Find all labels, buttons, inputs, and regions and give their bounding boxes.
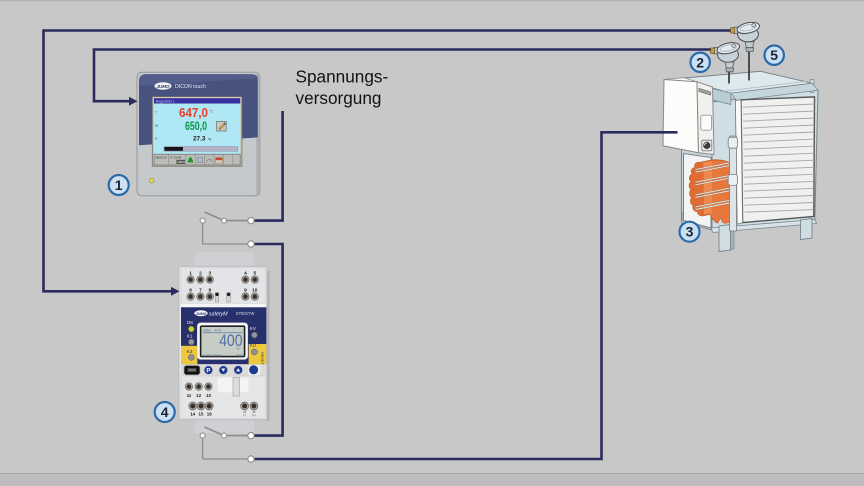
svg-text:(-): (-) (243, 413, 246, 417)
svg-text:RESET: RESET (260, 352, 264, 365)
svg-text:2: 2 (696, 54, 704, 70)
svg-text:P: P (206, 368, 210, 374)
svg-text:13: 13 (206, 393, 211, 398)
svg-text:8: 8 (208, 287, 211, 293)
svg-text:100M: 100M (177, 160, 185, 164)
svg-text:versorgung: versorgung (296, 88, 382, 108)
svg-text:14: 14 (190, 412, 195, 417)
svg-text:07:23:48: 07:23:48 (170, 155, 182, 159)
svg-text:650,0: 650,0 (185, 121, 207, 133)
svg-text:Spannungs-: Spannungs- (296, 67, 389, 87)
svg-text:JUMO: JUMO (156, 84, 170, 89)
svg-text:16: 16 (207, 412, 212, 417)
svg-text:11: 11 (187, 393, 192, 398)
svg-text:7: 7 (199, 287, 202, 293)
svg-text:DICON touch: DICON touch (175, 84, 206, 90)
svg-text:Max: Max (203, 329, 210, 333)
svg-text:KD: KD (250, 342, 257, 347)
svg-text:W: W (155, 124, 159, 128)
svg-text:9: 9 (244, 287, 247, 293)
svg-text:10: 10 (252, 287, 258, 293)
svg-text:KV: KV (250, 326, 257, 331)
svg-text:27.3: 27.3 (193, 136, 206, 143)
svg-text:4: 4 (161, 404, 169, 420)
svg-text:K1: K1 (187, 334, 193, 339)
svg-text:15: 15 (199, 412, 204, 417)
svg-text:1: 1 (115, 177, 123, 193)
svg-text:safetyM: safetyM (209, 311, 228, 317)
svg-text:°C: °C (236, 347, 240, 351)
svg-text:STB/STW: STB/STW (236, 311, 255, 316)
svg-text:K2: K2 (187, 349, 193, 354)
svg-text:12: 12 (196, 393, 201, 398)
svg-text:°C: °C (209, 109, 214, 114)
svg-text:Reglerbild 1: Reglerbild 1 (156, 99, 175, 103)
svg-text:(+): (+) (252, 413, 255, 417)
svg-text:647,0: 647,0 (179, 105, 208, 120)
svg-text:450: 450 (236, 353, 242, 357)
svg-text:JUMO: JUMO (196, 312, 207, 316)
svg-text:5: 5 (770, 47, 778, 63)
svg-text:OK: OK (187, 320, 195, 325)
svg-text:05/02/14: 05/02/14 (155, 155, 167, 159)
svg-text:Limit Value: Limit Value (203, 353, 222, 357)
svg-text:6: 6 (189, 287, 192, 293)
svg-text:3: 3 (686, 224, 694, 240)
